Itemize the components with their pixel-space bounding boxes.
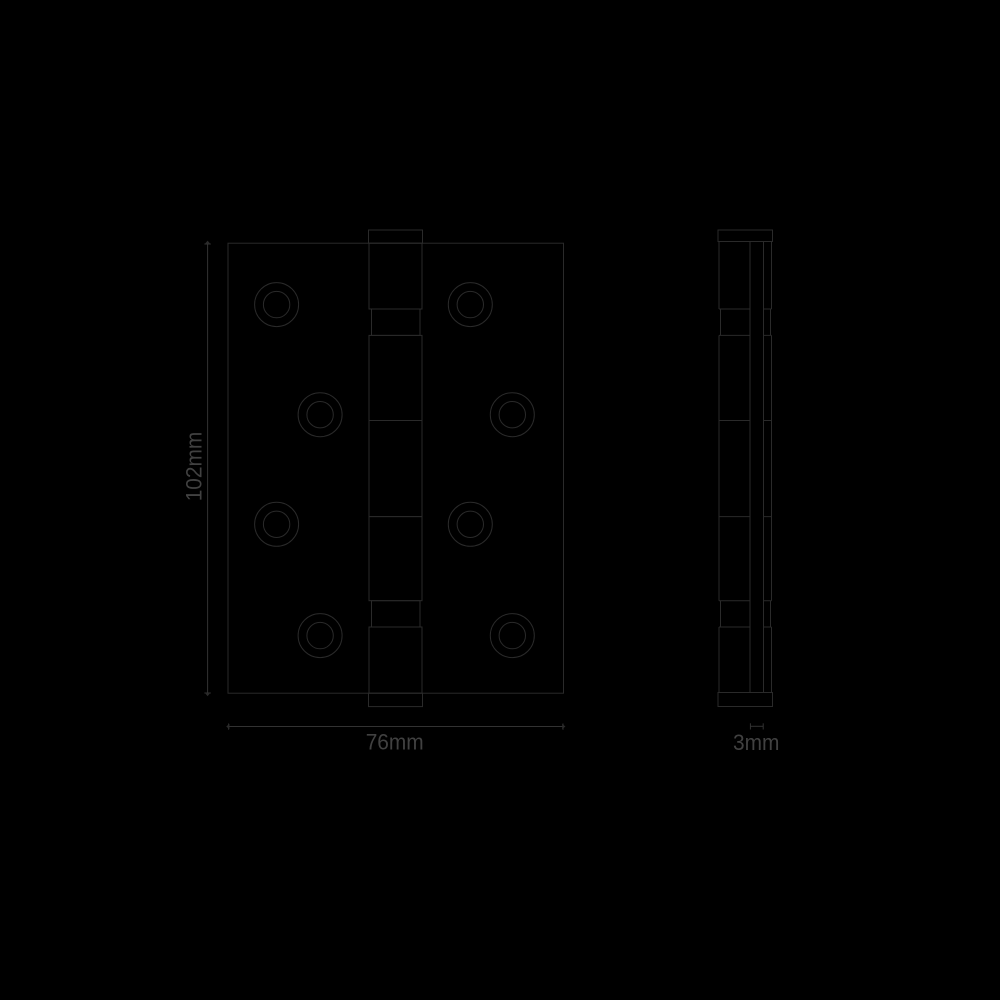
svg-text:102mm: 102mm — [182, 432, 207, 502]
svg-text:76mm: 76mm — [366, 730, 424, 755]
svg-text:3mm: 3mm — [733, 731, 779, 756]
